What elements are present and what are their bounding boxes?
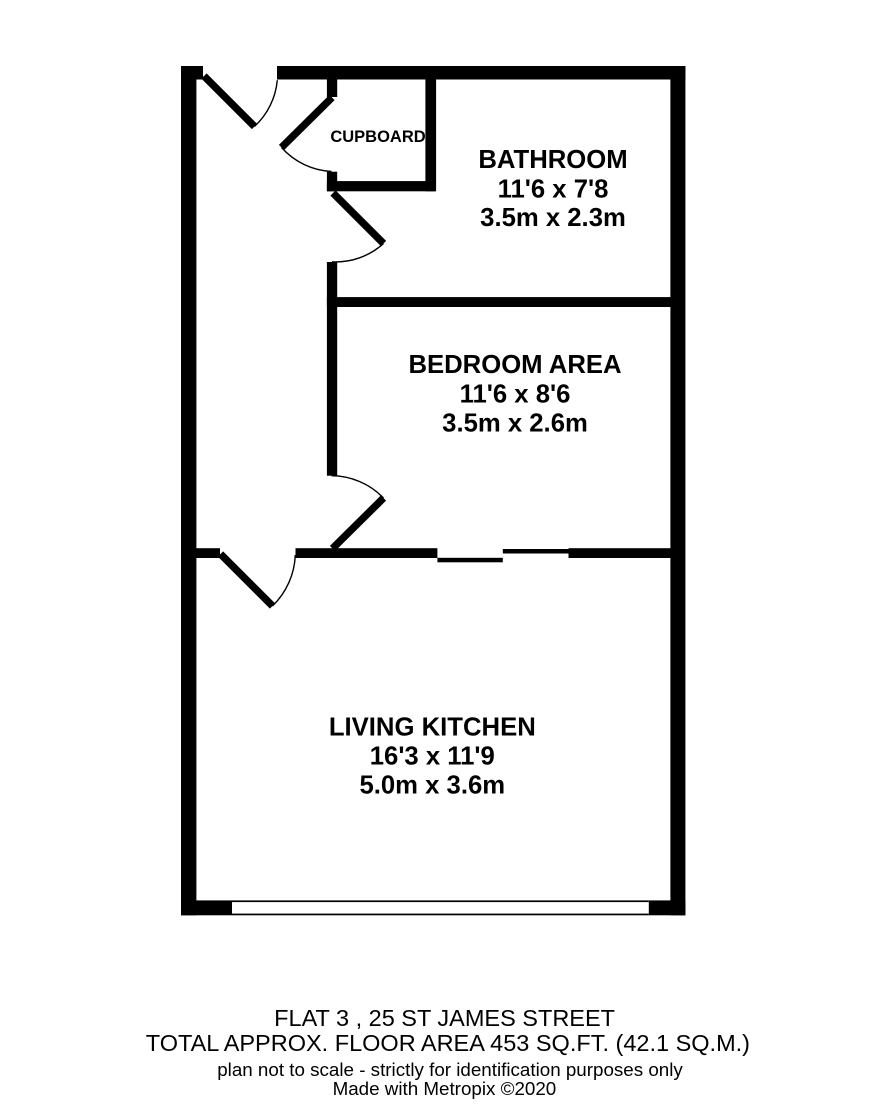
svg-text:TOTAL APPROX. FLOOR AREA 453 S: TOTAL APPROX. FLOOR AREA 453 SQ.FT. (42.… [146, 1030, 750, 1056]
svg-text:CUPBOARD: CUPBOARD [330, 128, 425, 146]
svg-text:11'6 x 7'8: 11'6 x 7'8 [498, 176, 609, 204]
svg-text:BEDROOM AREA: BEDROOM AREA [408, 351, 621, 379]
svg-text:FLAT 3 , 25 ST JAMES STREET: FLAT 3 , 25 ST JAMES STREET [274, 1005, 615, 1031]
svg-text:5.0m x 3.6m: 5.0m x 3.6m [359, 771, 505, 799]
svg-text:Made with Metropix ©2020: Made with Metropix ©2020 [333, 1078, 557, 1099]
svg-text:11'6 x 8'6: 11'6 x 8'6 [460, 381, 571, 409]
svg-text:16'3 x 11'9: 16'3 x 11'9 [370, 742, 495, 770]
svg-text:BATHROOM: BATHROOM [478, 146, 627, 174]
svg-text:plan not to scale - strictly f: plan not to scale - strictly for identif… [217, 1059, 683, 1080]
svg-text:LIVING KITCHEN: LIVING KITCHEN [329, 713, 536, 741]
svg-text:3.5m x 2.6m: 3.5m x 2.6m [442, 410, 588, 438]
svg-text:3.5m x 2.3m: 3.5m x 2.3m [480, 204, 626, 232]
